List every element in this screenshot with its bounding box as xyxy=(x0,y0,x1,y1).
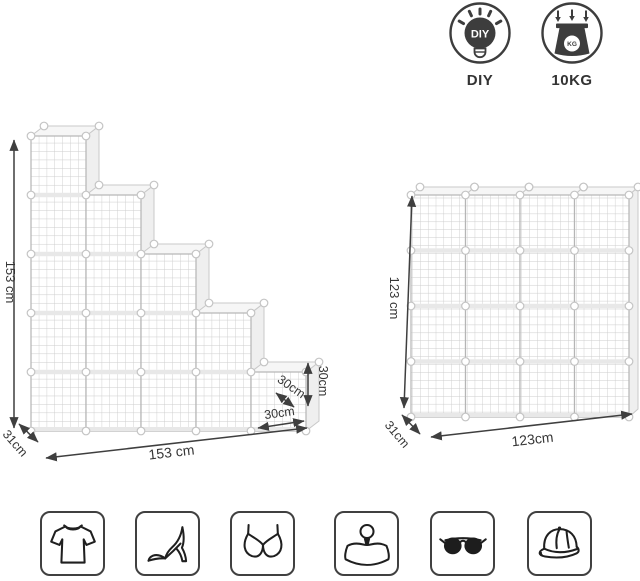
stair-organizer-illustration: 153 cm 153 cm 31cm 30cm 30cm 30cm xyxy=(0,118,345,472)
category-tile-high-heel xyxy=(135,511,200,576)
weight-badge-label: 10KG xyxy=(537,72,607,89)
stair-structure xyxy=(27,122,323,435)
grid-width-label: 123cm xyxy=(511,429,555,450)
diy-badge-label: DIY xyxy=(445,72,515,89)
diy-badge: DIY DIY xyxy=(445,2,515,89)
grid-depth-label: 31cm xyxy=(382,418,412,450)
down-arrows xyxy=(555,10,589,23)
stair-height-label: 153 cm xyxy=(3,261,18,304)
category-tile-baseball-cap xyxy=(527,511,592,576)
cube-height-label: 30cm xyxy=(316,366,330,397)
weight-handle-bar xyxy=(556,24,588,29)
product-diagram: DIY DIY KG 10KG xyxy=(0,0,640,581)
stair-depth-label: 31cm xyxy=(0,427,30,459)
weight-unit-text: KG xyxy=(567,41,577,48)
sunglasses-icon xyxy=(437,518,489,570)
category-tile-bra xyxy=(230,511,295,576)
grid-height-label: 123 cm xyxy=(387,277,402,320)
diy-bulb-icon: DIY xyxy=(445,2,515,66)
grid-organizer-illustration: 123 cm 123cm 31cm xyxy=(378,146,640,460)
bra-icon xyxy=(237,518,289,570)
handbag-icon xyxy=(341,518,393,570)
stair-width-label: 153 cm xyxy=(148,441,195,462)
category-tile-tshirt xyxy=(40,511,105,576)
weight-badge: KG 10KG xyxy=(537,2,607,89)
grid-structure xyxy=(407,183,640,421)
bulb-text: DIY xyxy=(471,29,490,41)
baseball-cap-icon xyxy=(534,518,586,570)
high-heel-icon xyxy=(142,518,194,570)
category-tile-sunglasses xyxy=(430,511,495,576)
tshirt-icon xyxy=(47,518,99,570)
category-tile-handbag xyxy=(334,511,399,576)
weight-icon: KG xyxy=(537,2,607,66)
bulb-base xyxy=(475,49,486,58)
